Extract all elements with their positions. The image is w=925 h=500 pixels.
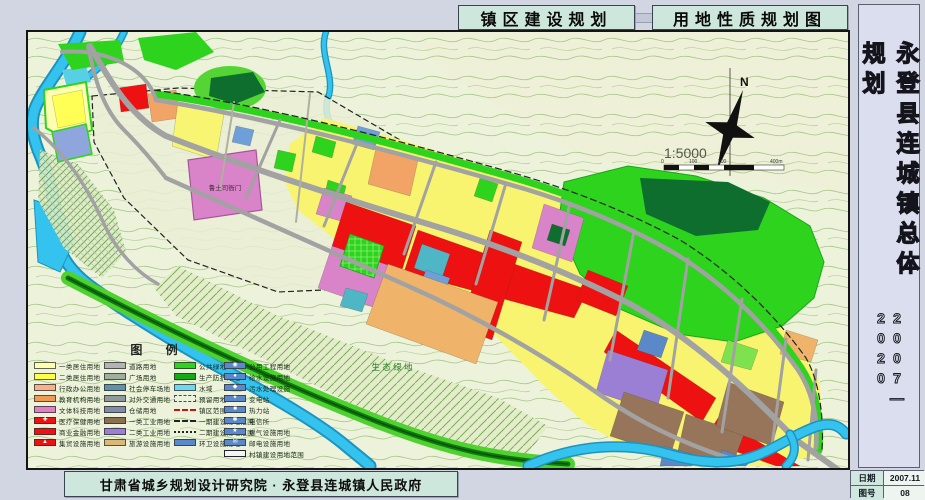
sidebar-years: 2007—2020 [873, 302, 905, 467]
figno-label: 图号 [851, 486, 883, 500]
legend-item: 水域 [174, 383, 213, 392]
medical-cross-icon: ✚ [42, 418, 47, 423]
substation-icon: ✦ [232, 396, 237, 401]
legend-label: 广场用地 [129, 372, 157, 382]
utility-icon: ◉ [232, 363, 237, 368]
legend-item: 广场用地 [104, 372, 157, 381]
legend-item: ◆污水处理设施 [224, 383, 290, 392]
legend-swatch [104, 439, 126, 446]
legend-swatch [34, 384, 56, 391]
legend-swatch: ◆ [224, 384, 246, 391]
post-icon: ✉ [232, 440, 237, 445]
legend-label: 热力站 [249, 405, 270, 415]
figno-value: 08 [884, 486, 925, 500]
legend-item: 道路用地 [104, 361, 157, 370]
legend-label: 电信所 [249, 416, 270, 426]
legend-label: 污水处理设施 [249, 383, 290, 393]
legend-swatch: ✉ [224, 439, 246, 446]
legend-item: ■热力站 [224, 405, 270, 414]
legend-swatch [104, 406, 126, 413]
date-value: 2007.11 [884, 471, 925, 485]
legend-item: 仓储用地 [104, 405, 157, 414]
legend-label: 镇区范围 [199, 405, 227, 415]
legend-item: 二类工业用地 [104, 427, 170, 436]
legend-swatch [34, 373, 56, 380]
legend-swatch [174, 395, 196, 402]
legend-label: 公共绿地 [199, 361, 227, 371]
credit-bar: 甘肃省城乡规划设计研究院 · 永登县连城镇人民政府 [64, 471, 458, 497]
page: 镇区建设规划 用地性质规划图 [0, 0, 925, 500]
legend-swatch [34, 428, 56, 435]
legend-item: 旅游设施用地 [104, 438, 170, 447]
legend-label: 文体科技用地 [59, 405, 100, 415]
legend-label: 道路用地 [129, 361, 157, 371]
credit-text: 甘肃省城乡规划设计研究院 · 永登县连城镇人民政府 [100, 475, 423, 494]
legend-item: 教育机构用地 [34, 394, 100, 403]
legend-item: 二类居住用地 [34, 372, 100, 381]
legend-label: 公用工程用地 [249, 361, 290, 371]
legend-label: 变电站 [249, 394, 270, 404]
legend-swatch [174, 373, 196, 380]
legend-label: 燃气设施用地 [249, 427, 290, 437]
legend-label: 教育机构用地 [59, 394, 100, 404]
legend-swatch [174, 439, 196, 446]
legend-label: 社会停车场地 [129, 383, 170, 393]
legend-item: 镇区范围 [174, 405, 227, 414]
legend-swatch: ◉ [224, 362, 246, 369]
legend-label: 一类居住用地 [59, 361, 100, 371]
legend-swatch: ✚ [34, 417, 56, 424]
legend-item: ◉公用工程用地 [224, 361, 290, 370]
legend-item: ✉邮电设施用地 [224, 438, 290, 447]
legend-label: 行政办公用地 [59, 383, 100, 393]
legend-label: 医疗保健用地 [59, 416, 100, 426]
sewage-icon: ◆ [233, 385, 238, 390]
legend-swatch [34, 395, 56, 402]
legend-swatch: ✦ [224, 395, 246, 402]
legend-title: 图 例 [114, 341, 204, 358]
info-table: 日期 2007.11 图号 08 [850, 470, 924, 498]
heating-icon: ■ [233, 407, 237, 412]
legend-item: ●给水设施用地 [224, 372, 290, 381]
legend-label: 水域 [199, 383, 213, 393]
legend-item: 对外交通用地 [104, 394, 170, 403]
sidebar: 永登县连城镇总体规划 2007—2020 [858, 4, 920, 468]
legend-swatch [174, 362, 196, 369]
title-landuse-text: 用地性质规划图 [673, 6, 827, 30]
legend-label: 一类工业用地 [129, 416, 170, 426]
title-box-landuse: 用地性质规划图 [652, 5, 848, 30]
legend-item: 社会停车场地 [104, 383, 170, 392]
legend-swatch [174, 431, 196, 433]
legend-swatch: ★ [224, 428, 246, 435]
legend-swatch [174, 420, 196, 422]
title-connector [633, 13, 652, 23]
legend-item: ▲集贸设施用地 [34, 438, 100, 447]
legend-swatch: ✱ [224, 417, 246, 424]
legend-swatch: ● [224, 373, 246, 380]
legend-swatch [104, 417, 126, 424]
legend-label: 商业金融用地 [59, 427, 100, 437]
legend-item: 预留用地 [174, 394, 227, 403]
legend-swatch [104, 362, 126, 369]
legend-swatch [34, 362, 56, 369]
market-triangle-icon: ▲ [42, 440, 48, 445]
legend-item: ★燃气设施用地 [224, 427, 290, 436]
legend-item: 行政办公用地 [34, 383, 100, 392]
date-label: 日期 [851, 471, 883, 485]
title-plan-text: 镇区建设规划 [480, 6, 612, 30]
legend-label: 仓储用地 [129, 405, 157, 415]
legend-swatch: ■ [224, 406, 246, 413]
legend-swatch [104, 384, 126, 391]
legend-label: 二类工业用地 [129, 427, 170, 437]
map: N 1:5000 0 100 200 400m 鲁土司衙门 生 态 绿 地 图 … [26, 30, 850, 470]
legend-label: 给水设施用地 [249, 372, 290, 382]
legend-item: 文体科技用地 [34, 405, 100, 414]
legend: 图 例 一类居住用地二类居住用地行政办公用地教育机构用地文体科技用地✚医疗保健用… [28, 32, 848, 468]
legend-item: 公共绿地 [174, 361, 227, 370]
title-box-plan: 镇区建设规划 [458, 5, 635, 30]
legend-label: 集贸设施用地 [59, 438, 100, 448]
legend-label: 对外交通用地 [129, 394, 170, 404]
telecom-icon: ✱ [232, 418, 237, 423]
legend-item: ✱电信所 [224, 416, 270, 425]
legend-label: 二类居住用地 [59, 372, 100, 382]
legend-swatch [174, 384, 196, 391]
legend-swatch [224, 450, 246, 457]
water-supply-icon: ● [233, 374, 237, 379]
legend-label: 邮电设施用地 [249, 438, 290, 448]
legend-swatch [104, 395, 126, 402]
legend-item: ✚医疗保健用地 [34, 416, 100, 425]
legend-swatch [174, 409, 196, 411]
legend-swatch [34, 406, 56, 413]
legend-item: 一类居住用地 [34, 361, 100, 370]
legend-swatch [104, 428, 126, 435]
legend-label: 旅游设施用地 [129, 438, 170, 448]
legend-item: 村镇建设用地范围 [224, 449, 304, 458]
legend-item: ✦变电站 [224, 394, 270, 403]
legend-item: 一类工业用地 [104, 416, 170, 425]
sidebar-title: 永登县连城镇总体规划 [855, 5, 923, 302]
legend-label: 村镇建设用地范围 [249, 449, 304, 459]
gas-icon: ★ [232, 429, 237, 434]
legend-label: 预留用地 [199, 394, 227, 404]
legend-swatch: ▲ [34, 439, 56, 446]
legend-item: 商业金融用地 [34, 427, 100, 436]
legend-swatch [104, 373, 126, 380]
